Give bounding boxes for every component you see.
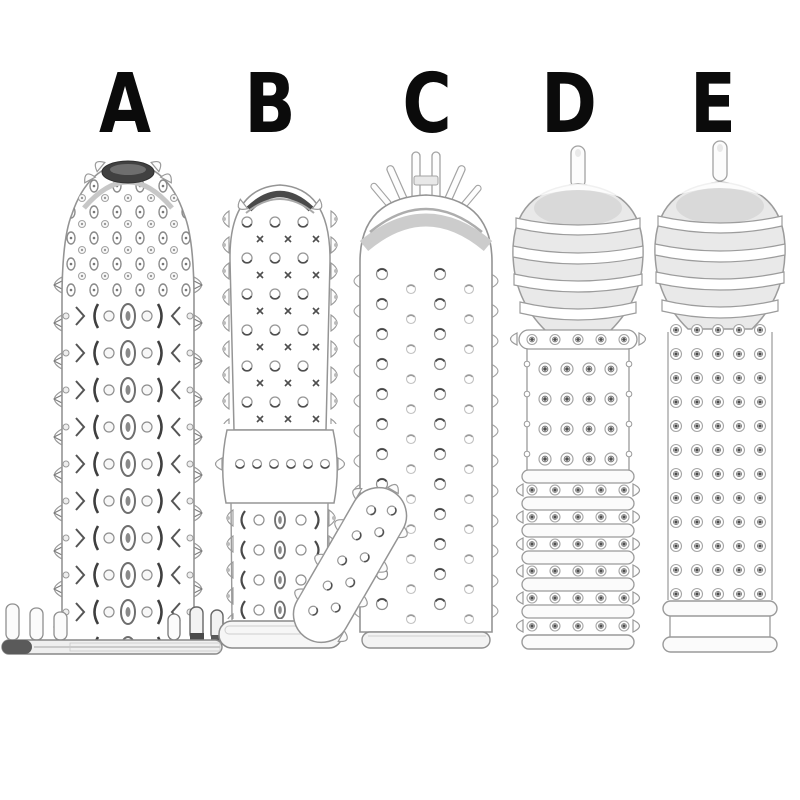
d-ring-segments [517,470,640,649]
e-ribbed-dome [655,182,785,329]
product-e-illustration [655,141,785,652]
product-image: A B C D E [0,0,800,800]
d-ribbed-dome [513,184,643,331]
e-stud-shaft [666,318,774,602]
a-left-spike-column [47,266,63,634]
e-double-ring-base [663,601,777,652]
c-base-ring [362,632,490,648]
d-stud-collar [511,330,646,349]
product-illustrations [0,0,800,800]
b-head-right-bumps [329,206,345,424]
product-a-illustration [2,158,223,654]
b-head-left-bumps [215,206,231,424]
b-head-texture [238,212,324,428]
a-right-spike-column [193,266,209,634]
e-tip-highlight [717,144,723,152]
d-upper-shaft [524,349,632,470]
product-d-illustration [511,146,646,649]
d-tip-highlight [575,149,581,157]
a-body-texture [60,298,196,640]
a-head-texture [64,178,192,298]
